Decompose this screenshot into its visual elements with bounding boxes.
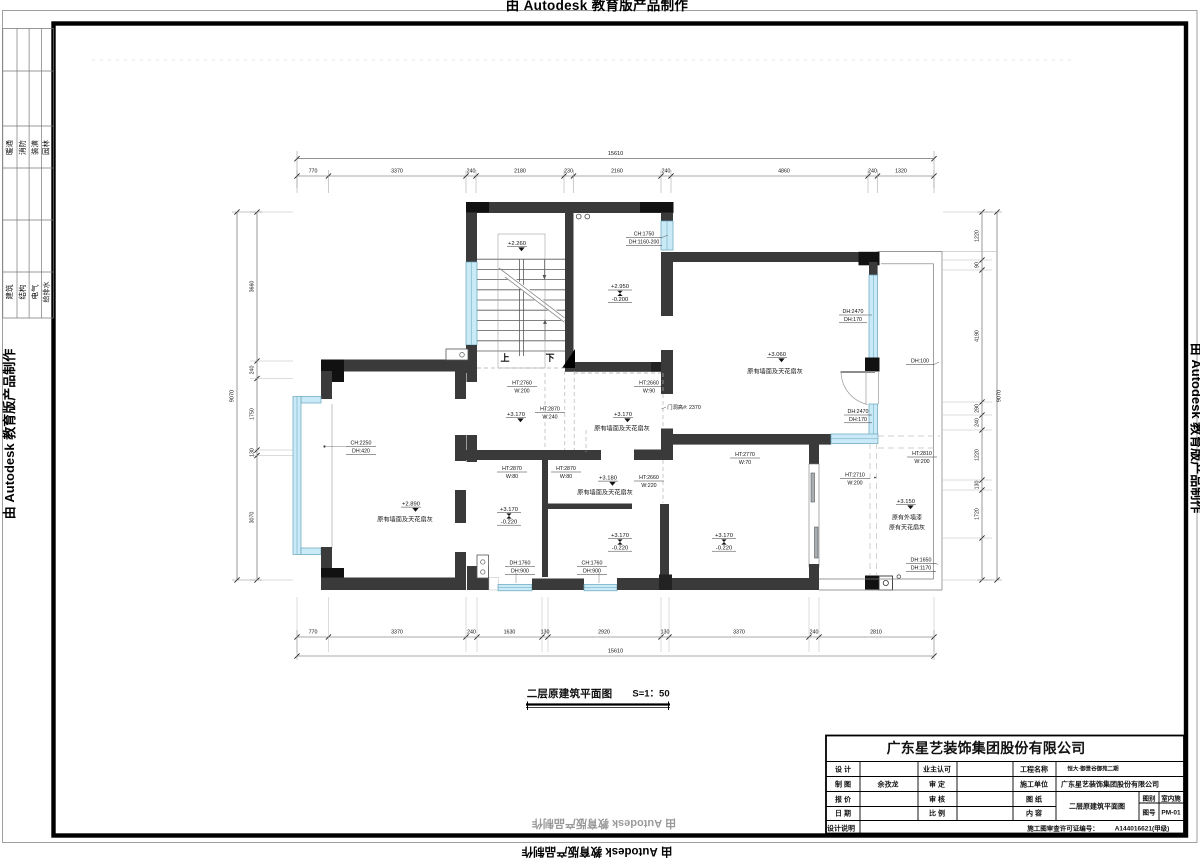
svg-text:建筑: 建筑	[4, 284, 14, 299]
svg-text:暖通: 暖通	[4, 140, 14, 155]
svg-text:广东星艺装饰集团股份有限公司: 广东星艺装饰集团股份有限公司	[887, 740, 1086, 756]
svg-text:2180: 2180	[514, 169, 526, 175]
svg-text:-0.200: -0.200	[612, 297, 628, 303]
svg-text:W:70: W:70	[739, 460, 751, 466]
svg-text:2920: 2920	[598, 630, 610, 636]
svg-text:日 期: 日 期	[835, 809, 851, 818]
svg-text:240: 240	[975, 418, 981, 427]
svg-text:HT:2760: HT:2760	[512, 381, 532, 387]
svg-text:+3.170: +3.170	[507, 412, 525, 418]
svg-text:室内施: 室内施	[1161, 794, 1181, 803]
svg-text:原有天花扇灰: 原有天花扇灰	[889, 524, 925, 532]
svg-text:制 图: 制 图	[835, 780, 851, 789]
svg-text:由 Autodesk 教育版产品制作: 由 Autodesk 教育版产品制作	[532, 817, 676, 831]
svg-text:+2.950: +2.950	[611, 284, 629, 290]
svg-text:9070: 9070	[230, 390, 236, 402]
svg-text:230: 230	[564, 169, 573, 175]
svg-text:恒大·御景谷御苑二期: 恒大·御景谷御苑二期	[1067, 765, 1119, 773]
svg-text:原有外墙漆: 原有外墙漆	[892, 514, 922, 522]
svg-text:-0.220: -0.220	[716, 546, 732, 552]
svg-text:DH:170: DH:170	[844, 317, 862, 323]
svg-text:DH:900: DH:900	[583, 569, 601, 575]
svg-text:2160: 2160	[611, 169, 623, 175]
svg-text:-0.220: -0.220	[501, 520, 517, 526]
svg-text:90: 90	[975, 262, 981, 268]
svg-text:HT:2660: HT:2660	[639, 381, 659, 387]
svg-text:DH:100: DH:100	[911, 359, 929, 365]
svg-text:DH:900: DH:900	[511, 569, 529, 575]
svg-text:3370: 3370	[391, 169, 403, 175]
svg-text:S=1：50: S=1：50	[632, 689, 669, 700]
svg-text:+3.170: +3.170	[611, 533, 629, 539]
svg-text:2810: 2810	[870, 630, 882, 636]
svg-text:HT:2870: HT:2870	[502, 466, 522, 472]
svg-text:130: 130	[975, 481, 981, 490]
svg-text:DH:2470: DH:2470	[843, 309, 864, 315]
svg-text:原有墙面及天花扇灰: 原有墙面及天花扇灰	[577, 489, 633, 497]
svg-text:W:90: W:90	[643, 389, 655, 395]
svg-text:DH:1170: DH:1170	[911, 566, 932, 572]
svg-text:CH:1760: CH:1760	[582, 561, 603, 567]
svg-text:240: 240	[662, 169, 671, 175]
svg-text:W:200: W:200	[847, 481, 862, 487]
svg-text:内 容: 内 容	[1026, 809, 1042, 818]
svg-text:130: 130	[661, 630, 670, 636]
svg-text:图 纸: 图 纸	[1026, 795, 1042, 804]
svg-text:+3.170: +3.170	[500, 507, 518, 513]
svg-text:余孜龙: 余孜龙	[877, 780, 899, 789]
svg-text:DH:2470: DH:2470	[848, 409, 869, 415]
svg-text:A144016621(甲级): A144016621(甲级)	[1115, 824, 1170, 833]
svg-text:HT:2870: HT:2870	[556, 466, 576, 472]
svg-text:4860: 4860	[778, 169, 790, 175]
svg-text:结构: 结构	[17, 284, 27, 299]
svg-text:下: 下	[545, 353, 554, 363]
svg-text:9070: 9070	[997, 390, 1003, 402]
svg-text:园林: 园林	[41, 140, 51, 155]
svg-text:DH:1160-200: DH:1160-200	[629, 240, 660, 246]
svg-text:由 Autodesk 教育版产品制作: 由 Autodesk 教育版产品制作	[1189, 343, 1200, 513]
svg-text:-0.220: -0.220	[612, 546, 628, 552]
svg-text:装潢: 装潢	[29, 140, 39, 155]
svg-text:HT:2870: HT:2870	[540, 407, 560, 413]
svg-text:3370: 3370	[733, 630, 745, 636]
svg-text:240: 240	[467, 169, 476, 175]
svg-text:原有墙面及天花扇灰: 原有墙面及天花扇灰	[747, 368, 803, 376]
svg-text:DH:420: DH:420	[352, 449, 370, 455]
svg-text:+3.150: +3.150	[897, 499, 915, 505]
svg-text:1220: 1220	[975, 449, 981, 461]
svg-text:240: 240	[810, 630, 819, 636]
svg-text:240: 240	[250, 366, 256, 375]
svg-text:130: 130	[250, 448, 256, 457]
svg-text:W:80: W:80	[560, 474, 572, 480]
svg-text:由 Autodesk 教育版产品制作: 由 Autodesk 教育版产品制作	[2, 349, 17, 519]
svg-text:二层原建筑平面图: 二层原建筑平面图	[527, 687, 613, 700]
svg-text:广东星艺装饰集团股份有限公司: 广东星艺装饰集团股份有限公司	[1061, 780, 1159, 789]
svg-text:W:240: W:240	[542, 415, 557, 421]
svg-text:DH:1760: DH:1760	[510, 561, 531, 567]
svg-text:3070: 3070	[250, 512, 256, 524]
svg-text:+3.170: +3.170	[715, 533, 733, 539]
svg-text:240: 240	[868, 169, 877, 175]
svg-text:消防: 消防	[17, 140, 27, 155]
svg-text:审 定: 审 定	[929, 780, 945, 789]
svg-text:图别: 图别	[1143, 794, 1157, 803]
svg-text:由 Autodesk 教育版产品制作: 由 Autodesk 教育版产品制作	[521, 845, 672, 859]
svg-text:W:200: W:200	[914, 459, 929, 465]
svg-text:1220: 1220	[975, 230, 981, 242]
svg-text:770: 770	[309, 169, 318, 175]
svg-text:+2.890: +2.890	[402, 502, 420, 508]
svg-text:门洞高#: 2370: 门洞高#: 2370	[667, 403, 701, 411]
svg-text:DH:1650: DH:1650	[911, 558, 932, 564]
svg-text:15610: 15610	[608, 649, 623, 655]
svg-text:比 例: 比 例	[929, 809, 945, 818]
svg-text:3660: 3660	[250, 281, 256, 293]
svg-text:DH:170: DH:170	[849, 417, 867, 423]
svg-text:1750: 1750	[250, 408, 256, 420]
svg-text:工程名称: 工程名称	[1020, 765, 1048, 774]
svg-text:施工图审查许可证编号：: 施工图审查许可证编号：	[1027, 824, 1099, 833]
svg-text:1320: 1320	[895, 169, 907, 175]
svg-text:电气: 电气	[29, 284, 39, 299]
svg-text:原有墙面及天花扇灰: 原有墙面及天花扇灰	[377, 516, 433, 524]
svg-text:HT:2770: HT:2770	[735, 452, 755, 458]
svg-text:业主认可: 业主认可	[923, 765, 951, 774]
svg-text:770: 770	[309, 630, 318, 636]
svg-text:+3.180: +3.180	[599, 476, 617, 482]
svg-text:施工单位: 施工单位	[1020, 780, 1048, 789]
svg-text:审 核: 审 核	[929, 795, 945, 804]
svg-text:设计说明: 设计说明	[827, 824, 855, 833]
svg-text:HT:2710: HT:2710	[845, 473, 865, 479]
svg-text:由 Autodesk 教育版产品制作: 由 Autodesk 教育版产品制作	[506, 0, 689, 13]
svg-text:W:200: W:200	[514, 389, 529, 395]
svg-text:W:80: W:80	[506, 474, 518, 480]
svg-text:CH:1750: CH:1750	[634, 232, 655, 238]
svg-text:HT:2810: HT:2810	[912, 451, 932, 457]
svg-text:给排水: 给排水	[42, 282, 51, 303]
svg-text:CH:2250: CH:2250	[351, 441, 372, 447]
svg-text:+3.170: +3.170	[614, 412, 632, 418]
svg-text:15610: 15610	[608, 151, 623, 157]
svg-text:4190: 4190	[975, 330, 981, 342]
svg-text:图号: 图号	[1143, 808, 1157, 817]
svg-text:W:220: W:220	[641, 483, 656, 489]
svg-text:240: 240	[467, 630, 476, 636]
svg-text:3370: 3370	[391, 630, 403, 636]
svg-text:上: 上	[500, 352, 509, 363]
svg-text:二层原建筑平面图: 二层原建筑平面图	[1069, 802, 1125, 811]
svg-text:报 价: 报 价	[835, 795, 852, 804]
svg-text:HT:2660: HT:2660	[639, 475, 659, 481]
svg-text:PM-01: PM-01	[1161, 810, 1181, 817]
svg-text:设 计: 设 计	[835, 765, 851, 774]
svg-text:1630: 1630	[504, 630, 516, 636]
svg-text:+2.260: +2.260	[508, 241, 526, 247]
svg-text:原有墙面及天花扇灰: 原有墙面及天花扇灰	[594, 425, 650, 433]
svg-text:290: 290	[975, 404, 981, 413]
svg-text:+3.060: +3.060	[768, 352, 786, 358]
svg-text:130: 130	[541, 630, 550, 636]
svg-text:1720: 1720	[975, 508, 981, 520]
